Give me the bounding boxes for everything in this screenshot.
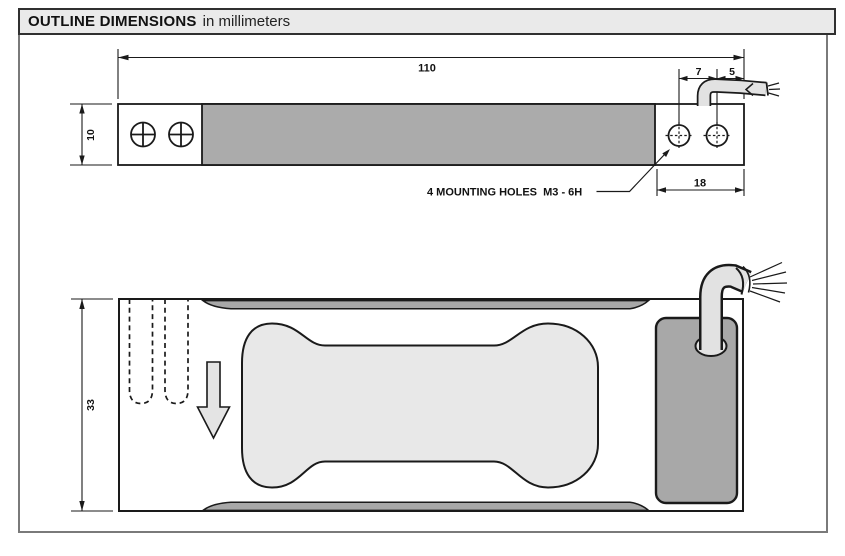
mounting-holes-note: 4 MOUNTING HOLES M3 - 6H (427, 187, 582, 199)
dim-label-10: 10 (85, 129, 97, 141)
dim-label-5: 5 (729, 66, 735, 78)
plan-top-edge-strip (203, 301, 649, 309)
plan-view: 33 (71, 263, 787, 512)
dim-label-110: 110 (418, 63, 436, 75)
dim-label-18: 18 (694, 178, 706, 190)
screw-head-left-2 (169, 123, 193, 147)
cable-fray-side (768, 83, 780, 96)
plan-bottom-edge-strip (203, 502, 649, 510)
dim-label-33: 33 (85, 399, 97, 411)
side-view-center-gray-section (202, 104, 655, 165)
side-view: 110 10 7 5 (70, 49, 780, 199)
cable-side-view (704, 83, 780, 107)
dim-label-7: 7 (696, 66, 702, 78)
screw-head-left-1 (131, 123, 155, 147)
cable-fray-plan (750, 263, 787, 303)
outline-dimensions-drawing: 110 10 7 5 (0, 0, 845, 556)
